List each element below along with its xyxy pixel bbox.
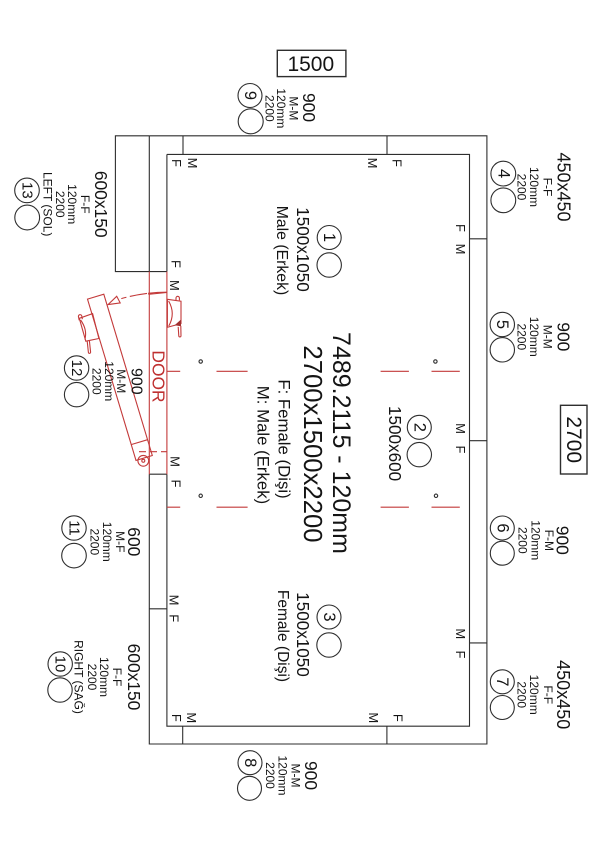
svg-text:5: 5	[493, 320, 511, 329]
svg-text:F-M: F-M	[542, 530, 556, 551]
svg-text:1500x600: 1500x600	[385, 406, 404, 481]
svg-text:2200: 2200	[87, 528, 101, 555]
svg-text:F: F	[168, 260, 183, 268]
svg-text:LEFT (SOL): LEFT (SOL)	[40, 172, 54, 236]
svg-text:2200: 2200	[85, 664, 99, 691]
svg-text:M: Male (Erkek): M: Male (Erkek)	[254, 386, 273, 504]
svg-text:M: M	[453, 423, 468, 434]
svg-text:M: M	[167, 595, 182, 606]
svg-text:2700: 2700	[562, 416, 585, 463]
svg-text:F: F	[453, 224, 468, 232]
svg-text:M: M	[453, 628, 468, 639]
svg-text:1500: 1500	[287, 53, 334, 76]
svg-text:900: 900	[301, 761, 321, 790]
svg-text:7: 7	[493, 677, 511, 686]
svg-text:9: 9	[241, 91, 259, 100]
svg-text:2700x1500x2200: 2700x1500x2200	[298, 345, 326, 542]
svg-text:M: M	[184, 712, 199, 723]
svg-text:M-M: M-M	[289, 764, 303, 788]
svg-text:M-M: M-M	[541, 325, 555, 349]
svg-text:8: 8	[241, 758, 259, 767]
svg-text:F: F	[453, 446, 468, 454]
svg-text:900: 900	[299, 93, 319, 122]
svg-text:2: 2	[410, 423, 428, 432]
svg-text:2200: 2200	[515, 323, 529, 350]
svg-text:F: F	[168, 480, 183, 488]
svg-text:Male (Erkek): Male (Erkek)	[273, 206, 290, 296]
svg-text:120mm: 120mm	[529, 520, 543, 560]
svg-text:F-F: F-F	[78, 195, 92, 214]
svg-text:2200: 2200	[515, 681, 529, 708]
svg-text:F: F	[391, 714, 406, 722]
svg-text:Female (Dişi): Female (Dişi)	[274, 590, 291, 682]
svg-text:1500x1050: 1500x1050	[293, 592, 312, 677]
svg-text:F: F	[390, 159, 405, 167]
svg-text:DOOR: DOOR	[149, 350, 169, 402]
svg-text:M-F: M-F	[113, 531, 127, 552]
svg-text:F: F	[167, 614, 182, 622]
svg-text:F: F	[169, 159, 184, 167]
svg-text:12: 12	[68, 360, 85, 377]
svg-text:F-F: F-F	[541, 178, 555, 197]
svg-text:450x450: 450x450	[553, 152, 573, 221]
svg-text:F-F: F-F	[110, 668, 124, 687]
svg-text:4: 4	[494, 169, 512, 178]
svg-text:F-F: F-F	[541, 685, 555, 704]
svg-text:2200: 2200	[515, 174, 529, 201]
svg-text:2200: 2200	[90, 368, 104, 395]
svg-text:11: 11	[66, 520, 83, 536]
svg-text:900: 900	[553, 322, 573, 351]
svg-text:M: M	[366, 712, 381, 723]
svg-text:M: M	[168, 456, 183, 467]
svg-text:2200: 2200	[515, 527, 529, 554]
svg-text:900: 900	[128, 368, 145, 395]
svg-text:1500x1050: 1500x1050	[293, 207, 312, 292]
svg-text:600x150: 600x150	[91, 171, 111, 238]
svg-text:2200: 2200	[263, 95, 277, 122]
svg-text:6: 6	[493, 523, 511, 532]
svg-text:F: F	[169, 714, 184, 722]
svg-text:3: 3	[320, 612, 338, 621]
svg-text:M: M	[365, 158, 380, 169]
svg-text:F: F	[453, 651, 468, 659]
svg-text:RIGHT (SAĞ): RIGHT (SAĞ)	[72, 640, 87, 714]
svg-text:13: 13	[19, 182, 36, 199]
svg-text:1: 1	[320, 233, 338, 242]
svg-text:10: 10	[52, 656, 69, 673]
svg-text:M: M	[167, 280, 182, 291]
svg-text:M: M	[453, 244, 468, 255]
svg-text:7489.2115 - 120mm: 7489.2115 - 120mm	[327, 332, 355, 554]
svg-text:F: Female (Dişi): F: Female (Dişi)	[274, 379, 293, 498]
svg-text:600x150: 600x150	[124, 644, 144, 711]
svg-text:2200: 2200	[263, 762, 277, 789]
svg-text:M: M	[185, 158, 200, 169]
